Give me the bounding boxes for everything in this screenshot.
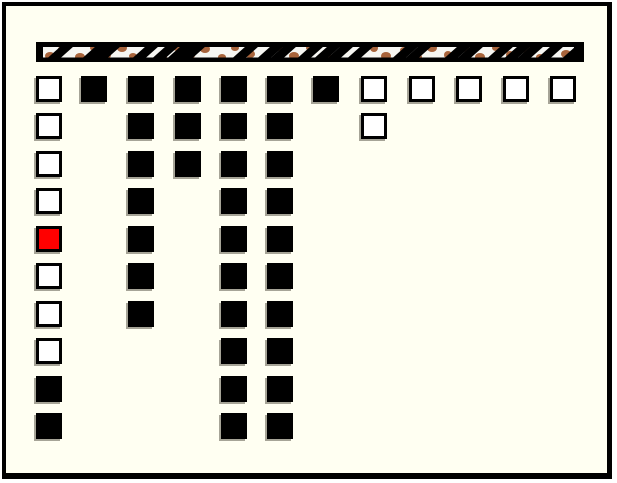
grid-cell[interactable] xyxy=(128,226,154,252)
grid-cell[interactable] xyxy=(175,76,201,102)
grid-cell[interactable] xyxy=(503,76,529,102)
grid-cell[interactable] xyxy=(267,301,293,327)
grid-cell[interactable] xyxy=(175,151,201,177)
grid-cell[interactable] xyxy=(221,301,247,327)
grid-cell[interactable] xyxy=(36,188,62,214)
grid-cell[interactable] xyxy=(221,376,247,402)
grid-cell[interactable] xyxy=(267,338,293,364)
grid-cell[interactable] xyxy=(36,338,62,364)
grid-cell[interactable] xyxy=(128,113,154,139)
grid-cell[interactable] xyxy=(267,263,293,289)
grid-cell[interactable] xyxy=(267,413,293,439)
grid-cell-selected[interactable] xyxy=(36,226,62,252)
grid-cell[interactable] xyxy=(221,413,247,439)
grid-cell[interactable] xyxy=(221,151,247,177)
grid-cell[interactable] xyxy=(36,76,62,102)
grid-cell[interactable] xyxy=(128,263,154,289)
grid-cell[interactable] xyxy=(409,76,435,102)
grid-cell[interactable] xyxy=(267,151,293,177)
grid-cell[interactable] xyxy=(81,76,107,102)
grid-cell[interactable] xyxy=(128,151,154,177)
grid-cell[interactable] xyxy=(221,76,247,102)
grid-cell[interactable] xyxy=(267,226,293,252)
grid-cell[interactable] xyxy=(221,263,247,289)
grid-cell[interactable] xyxy=(550,76,576,102)
grid-cell[interactable] xyxy=(267,76,293,102)
grid-cell[interactable] xyxy=(36,376,62,402)
grid-cell[interactable] xyxy=(221,338,247,364)
grid-cell[interactable] xyxy=(267,188,293,214)
grid-cell[interactable] xyxy=(221,188,247,214)
grid-cell[interactable] xyxy=(456,76,482,102)
grid-cell[interactable] xyxy=(221,113,247,139)
grid-cell[interactable] xyxy=(361,113,387,139)
grid-cell[interactable] xyxy=(36,113,62,139)
grid-cell[interactable] xyxy=(313,76,339,102)
grid-board xyxy=(0,0,617,483)
grid-cell[interactable] xyxy=(36,263,62,289)
grid-cell[interactable] xyxy=(128,301,154,327)
grid-cell[interactable] xyxy=(175,113,201,139)
grid-cell[interactable] xyxy=(267,376,293,402)
grid-cell[interactable] xyxy=(128,188,154,214)
app-window xyxy=(0,0,617,483)
grid-cell[interactable] xyxy=(36,413,62,439)
grid-cell[interactable] xyxy=(36,151,62,177)
grid-cell[interactable] xyxy=(128,76,154,102)
grid-cell[interactable] xyxy=(36,301,62,327)
grid-cell[interactable] xyxy=(221,226,247,252)
grid-cell[interactable] xyxy=(267,113,293,139)
grid-cell[interactable] xyxy=(361,76,387,102)
